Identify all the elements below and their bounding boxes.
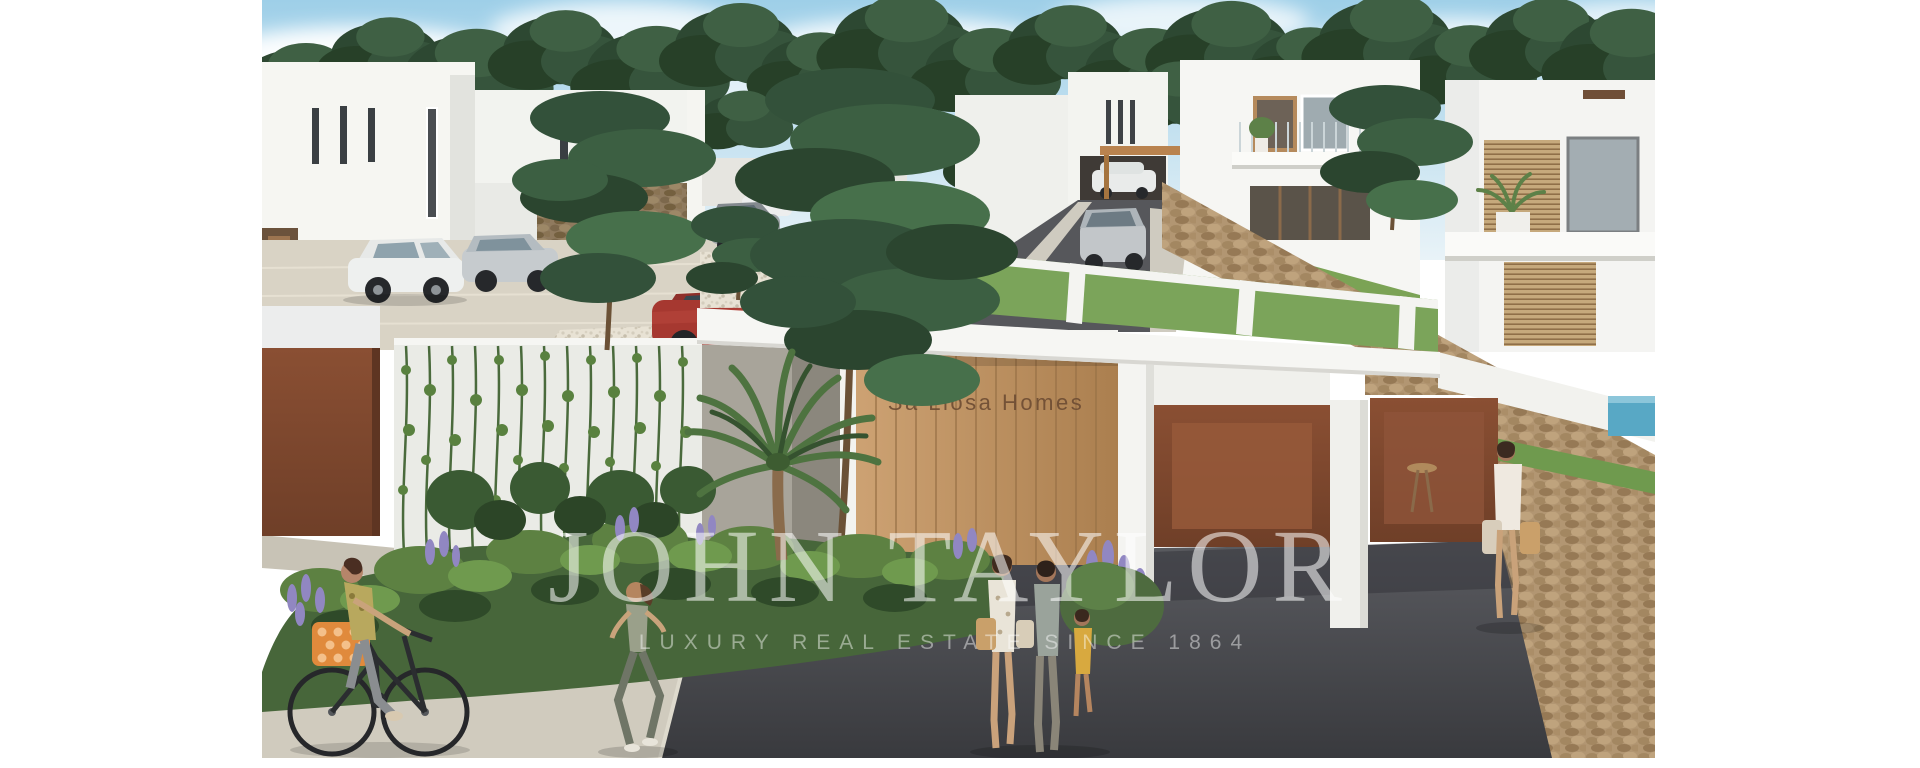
watermark-title: JOHN TAYLOR bbox=[548, 509, 1352, 624]
rendering-image: Sa Llosa Homes bbox=[0, 0, 1920, 768]
vent-strip bbox=[1583, 90, 1625, 99]
tall-window bbox=[427, 108, 437, 218]
slit-window bbox=[368, 108, 375, 162]
glass-door bbox=[1568, 138, 1638, 232]
screenshot-canvas: Sa Llosa Homes bbox=[0, 0, 1920, 768]
corten-door-left bbox=[262, 306, 380, 536]
watermark-subtitle: LUXURY REAL ESTATE SINCE 1864 bbox=[639, 631, 1251, 654]
tote-bag bbox=[1520, 522, 1540, 554]
balcony-plant bbox=[1249, 117, 1275, 139]
louver-shutters bbox=[1504, 262, 1596, 346]
villa-right-c bbox=[1445, 80, 1655, 352]
watermark: JOHN TAYLOR LUXURY REAL ESTATE SINCE 186… bbox=[548, 509, 1352, 654]
balcony-slab bbox=[1445, 232, 1655, 256]
slit-window bbox=[312, 108, 319, 164]
slit-window bbox=[340, 106, 347, 164]
